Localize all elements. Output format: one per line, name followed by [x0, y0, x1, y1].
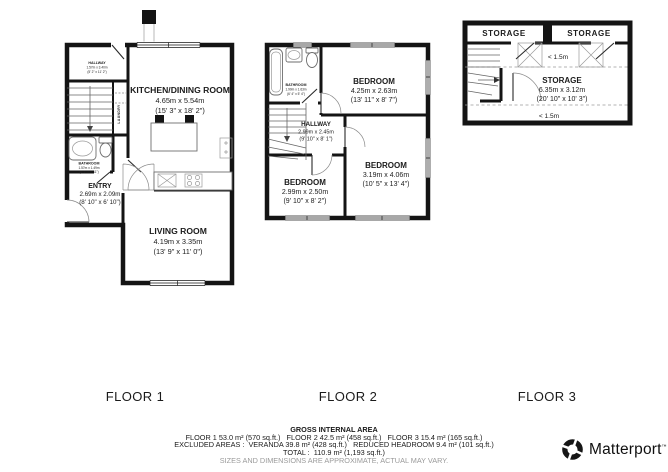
- room-dim-imperial: (10' 5" x 13' 4"): [363, 181, 410, 188]
- room-dim-metric: 1.90m x 1.63m: [285, 88, 306, 92]
- matterport-logo: Matterport™: [561, 438, 667, 461]
- room-dim-metric: 1.57m x 3.40m: [86, 66, 107, 70]
- laundry-shelves: [115, 93, 127, 103]
- floor-3-caption: FLOOR 3: [492, 389, 602, 404]
- room-dim-imperial: (20' 10" x 10' 3"): [537, 96, 588, 103]
- wall-stairwell: [480, 68, 501, 101]
- window: [355, 216, 410, 221]
- wall-storage-divider: [543, 22, 552, 44]
- room-dim-metric: 6.35m x 3.12m: [539, 87, 585, 94]
- room-label-hallway: HALLWAY: [88, 61, 106, 65]
- floorplan-floor-1: HALLWAY 1.57m x 3.40m (5' 2" x 11' 2") L…: [58, 8, 238, 288]
- room-label-entry: ENTRY: [88, 183, 112, 190]
- floor1-stairs: [67, 86, 113, 132]
- floor1-bathroom-fixtures: [69, 137, 112, 160]
- room-dim-imperial: (9' 10" x 8' 1"): [299, 137, 332, 143]
- bathroom-door-leaf: [97, 172, 110, 183]
- room-label-bedroom-top: BEDROOM: [353, 77, 395, 86]
- window: [426, 138, 431, 178]
- bedroom-left-door-arc: [312, 155, 332, 175]
- sink-icon: [286, 48, 302, 62]
- matterport-logo-icon: [561, 438, 584, 461]
- window: [137, 42, 200, 49]
- door-gap: [65, 200, 70, 222]
- matterport-logo-text: Matterport™: [589, 441, 667, 459]
- room-dim-metric: 2.99m x 2.45m: [298, 130, 334, 136]
- room-label-bedroom-left: BEDROOM: [284, 178, 326, 187]
- stairs-arrow: [87, 126, 93, 132]
- floorplan-page: { "floors": [ { "label": "FLOOR 1", "roo…: [0, 0, 668, 472]
- floor-1-caption: FLOOR 1: [80, 389, 190, 404]
- room-dim-metric: 2.69m x 2.09m: [80, 191, 121, 198]
- skylight-icon: [579, 43, 603, 67]
- room-dim-metric: 4.19m x 3.35m: [154, 237, 203, 246]
- room-dim-metric: 2.99m x 2.50m: [282, 189, 328, 196]
- storage-right-door-leaf: [596, 43, 614, 59]
- window: [426, 60, 431, 95]
- room-dim-imperial: (8' 10" x 6' 10"): [79, 199, 121, 206]
- floorplan-floor-3: STORAGE STORAGE < 1.5m STORAGE 6.35m x 3…: [458, 18, 638, 128]
- room-label-laundry: LAUNDRY: [117, 104, 121, 124]
- room-dim-imperial: (5' 2" x 4' 11"): [79, 170, 98, 174]
- toilet-bowl-icon: [100, 143, 111, 157]
- room-dim-metric: 4.65m x 5.54m: [156, 96, 205, 105]
- room-dim-imperial: (13' 11" x 8' 7"): [351, 97, 397, 104]
- floor-2-caption: FLOOR 2: [293, 389, 403, 404]
- bathtub-icon: [69, 137, 96, 160]
- window: [285, 216, 330, 221]
- window: [293, 43, 312, 48]
- room-label-hallway: HALLWAY: [301, 121, 332, 128]
- room-label-kitchen: KITCHEN/DINING ROOM: [130, 85, 230, 95]
- room-dim-imperial: (15' 3" x 18' 2"): [155, 106, 205, 115]
- stairs-arrow: [284, 136, 290, 142]
- room-dim-imperial: (13' 9" x 11' 0"): [153, 247, 202, 256]
- appliance-plus: [224, 141, 228, 154]
- room-dim-imperial: (5' 2" x 11' 2"): [87, 70, 106, 74]
- window: [150, 280, 205, 287]
- kitchen-door-leaf: [128, 160, 141, 172]
- floorplan-floor-2: BATHROOM 1.90m x 1.63m (6' 4" x 5' 4") B…: [260, 38, 435, 228]
- room-label-bathroom: BATHROOM: [286, 83, 307, 87]
- toilet-tank-icon: [99, 137, 112, 143]
- room-dim-metric: 4.25m x 2.63m: [351, 88, 397, 95]
- chimney: [142, 10, 156, 24]
- floor1-laundry-closet: [115, 93, 127, 103]
- trademark-symbol: ™: [662, 443, 667, 449]
- room-label-storage-main: STORAGE: [542, 76, 582, 85]
- room-dim-imperial: (9' 10" x 8' 2"): [283, 198, 326, 205]
- room-dim-imperial: (6' 4" x 5' 4"): [287, 92, 305, 96]
- room-label-bedroom-right: BEDROOM: [365, 161, 407, 170]
- floor1-kitchen-fixtures: [151, 115, 232, 190]
- bedroom-right-door-arc: [345, 127, 365, 147]
- dining-table-icon: [151, 123, 197, 151]
- floor3-stairs: [468, 49, 500, 95]
- headroom-note-bottom: < 1.5m: [539, 113, 560, 120]
- toilet-bowl-icon: [307, 53, 318, 68]
- bedroom-top-door-arc: [321, 93, 341, 113]
- window: [350, 43, 395, 48]
- room-dim-metric: 3.19m x 4.06m: [363, 172, 409, 179]
- room-label-storage-right: STORAGE: [567, 29, 611, 38]
- headroom-note-top: < 1.5m: [548, 54, 569, 61]
- room-label-living: LIVING ROOM: [149, 226, 207, 236]
- room-label-storage-left: STORAGE: [482, 29, 526, 38]
- junction-door-arc: [128, 164, 154, 190]
